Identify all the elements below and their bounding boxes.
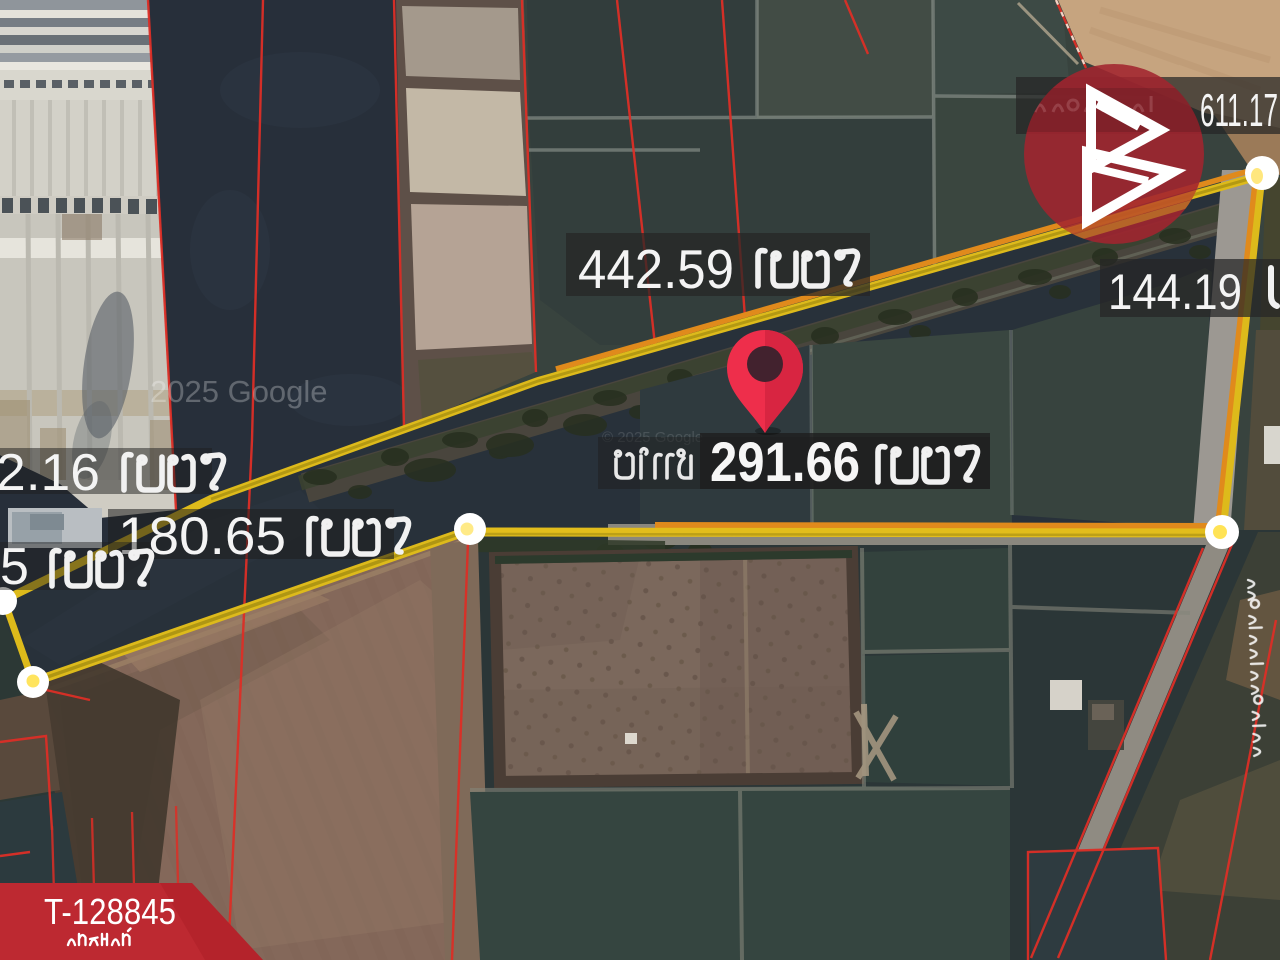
- svg-text:5: 5: [0, 538, 29, 596]
- svg-text:291.66: 291.66: [710, 430, 860, 493]
- svg-text:144.19: 144.19: [1108, 264, 1242, 320]
- svg-text:2025 Google: 2025 Google: [150, 374, 328, 409]
- svg-text:611.17: 611.17: [1200, 84, 1278, 136]
- svg-text:T-128845: T-128845: [44, 891, 176, 932]
- svg-text:442.59: 442.59: [578, 238, 734, 300]
- svg-text:2.16: 2.16: [0, 444, 100, 502]
